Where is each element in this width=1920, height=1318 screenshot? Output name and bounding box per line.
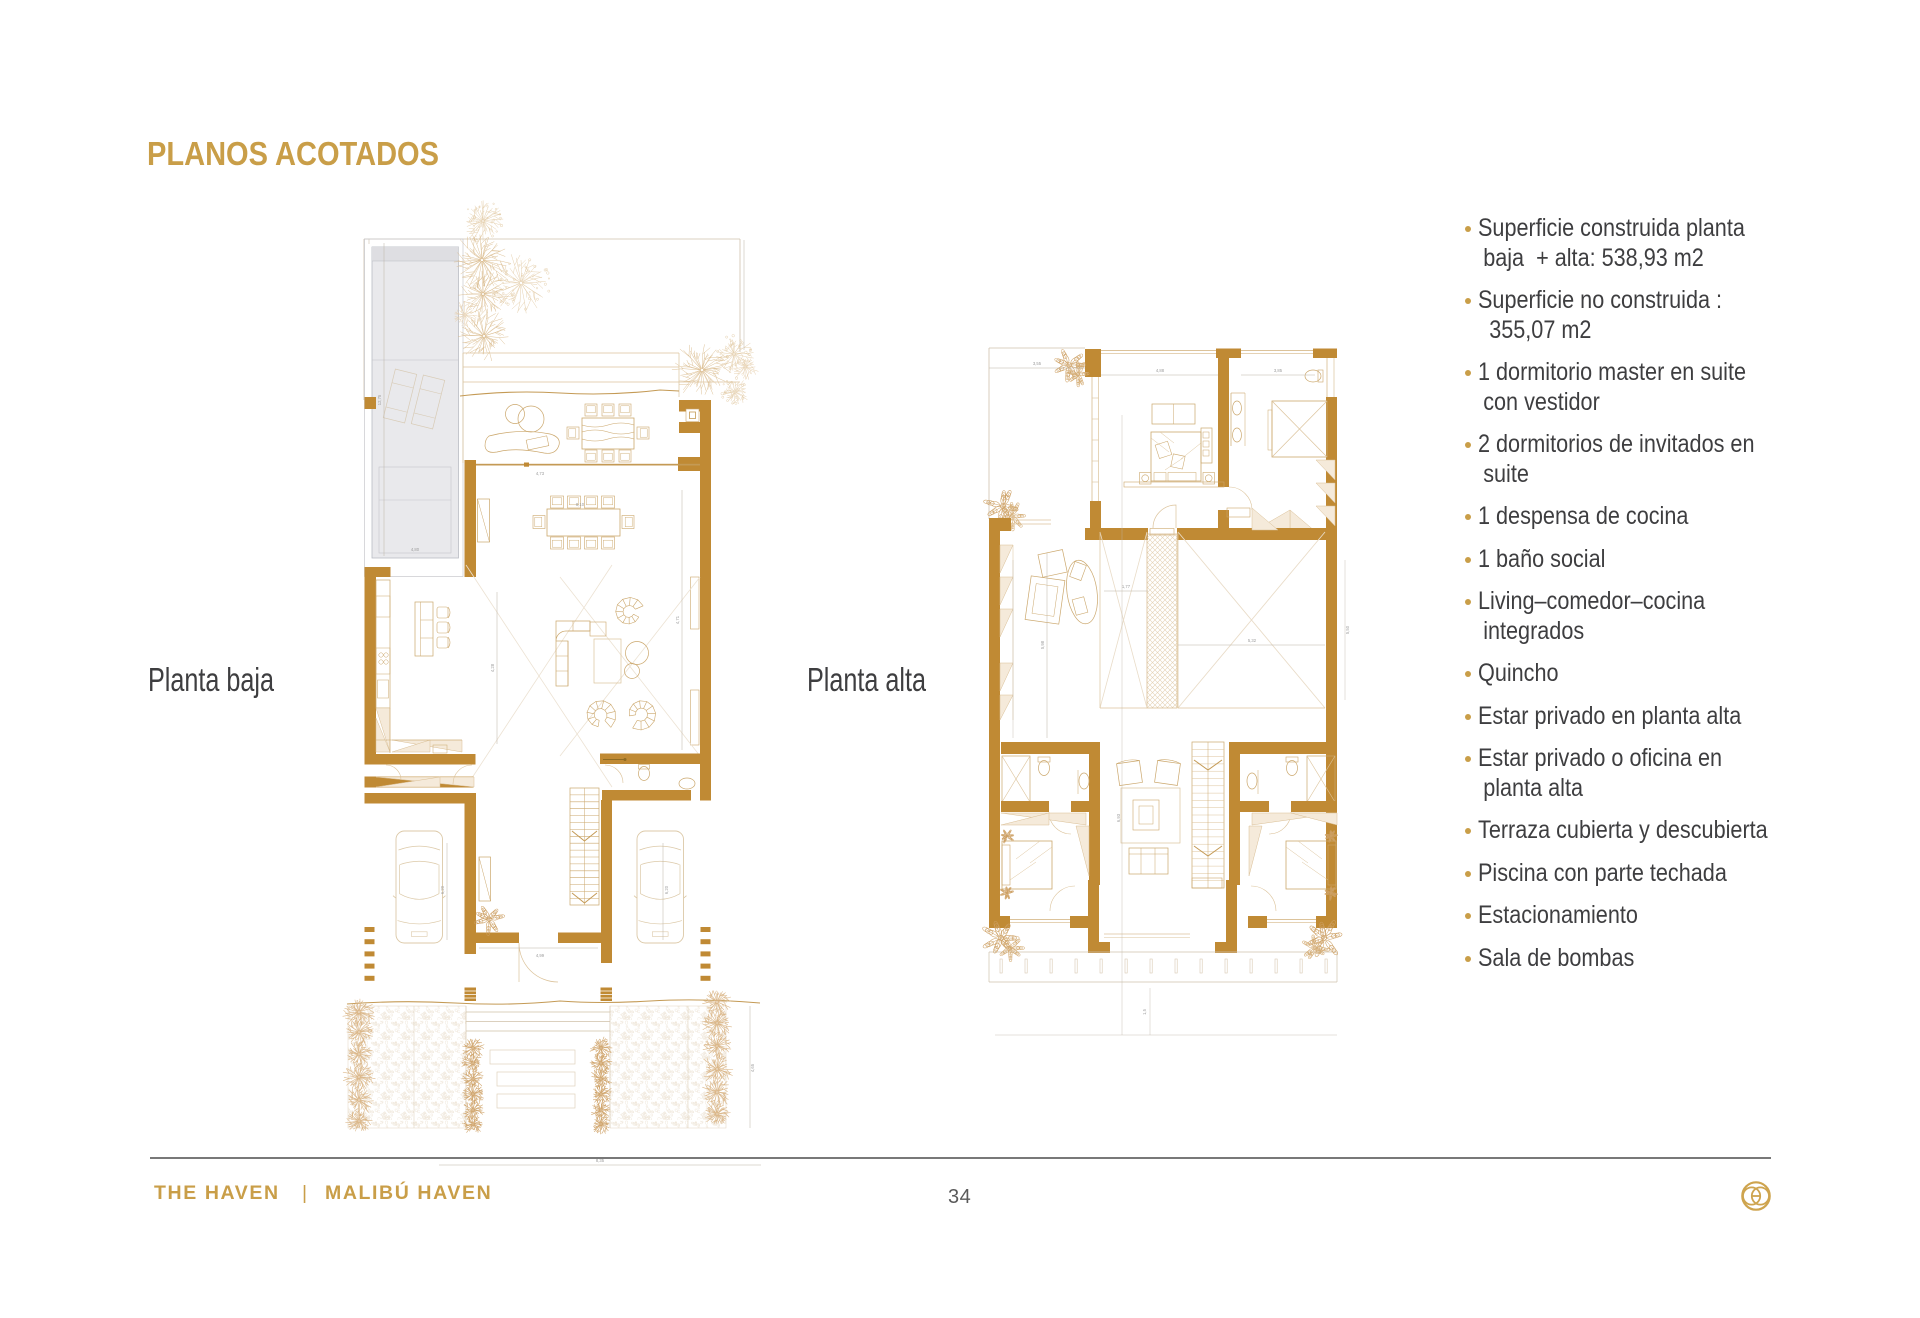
- svg-text:1,77: 1,77: [1122, 584, 1131, 589]
- svg-text:6,20: 6,20: [440, 885, 445, 894]
- svg-text:1,5: 1,5: [1142, 1008, 1147, 1014]
- svg-text:5,50: 5,50: [1345, 625, 1350, 634]
- svg-text:4,28: 4,28: [490, 663, 495, 672]
- svg-text:4,88: 4,88: [1156, 368, 1165, 373]
- svg-text:8,10: 8,10: [576, 502, 585, 507]
- svg-text:3,85: 3,85: [1274, 368, 1283, 373]
- svg-text:5,32: 5,32: [1248, 638, 1257, 643]
- svg-text:4,99: 4,99: [536, 953, 545, 958]
- svg-text:4,80: 4,80: [411, 547, 420, 552]
- svg-text:12,75: 12,75: [377, 394, 382, 405]
- svg-text:4,65: 4,65: [750, 1063, 755, 1072]
- svg-text:8,35: 8,35: [596, 1158, 605, 1163]
- svg-text:4,73: 4,73: [536, 471, 545, 476]
- svg-text:3,55: 3,55: [1033, 361, 1042, 366]
- svg-text:6,93: 6,93: [1116, 813, 1121, 822]
- svg-text:5,98: 5,98: [1040, 640, 1045, 649]
- svg-text:6,20: 6,20: [664, 885, 669, 894]
- svg-text:4,71: 4,71: [675, 615, 680, 624]
